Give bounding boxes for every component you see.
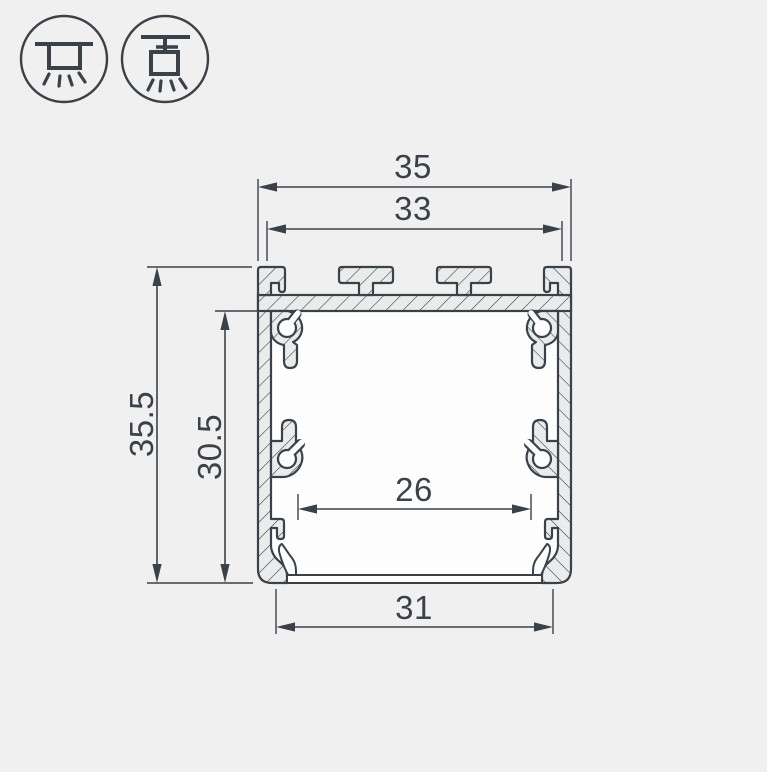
profile-cross-section-svg: 35 33 35.5 30.5 (0, 0, 767, 767)
bottom-diffuser (287, 575, 542, 583)
fixture-box (151, 52, 178, 74)
surface-mount-icon (21, 16, 107, 102)
mounting-icons (21, 16, 208, 102)
light-rays (44, 73, 85, 86)
dim-label-inner-height: 30.5 (191, 414, 228, 480)
technical-drawing: 35 33 35.5 30.5 (0, 0, 767, 767)
dim-label-outer-height: 35.5 (123, 391, 160, 457)
fixture-box (49, 44, 80, 68)
dim-label-inner-width: 26 (395, 471, 433, 508)
inner-cavity (271, 311, 558, 575)
top-plate (258, 295, 571, 311)
dim-label-top-inner-width: 33 (394, 190, 432, 227)
top-rib-t2 (437, 267, 491, 295)
light-rays (148, 79, 186, 91)
top-rib-left-end (258, 267, 285, 295)
dim-top-inner-width-33: 33 (267, 190, 562, 261)
dim-bottom-width-31: 31 (276, 589, 553, 634)
pendant-mount-icon (122, 16, 208, 102)
icon-circle (122, 16, 208, 102)
dim-label-top-width: 35 (394, 148, 432, 185)
top-rib-right-end (544, 267, 571, 295)
dim-outer-height-35-5: 35.5 (123, 267, 253, 583)
dim-label-bottom-width: 31 (395, 589, 433, 626)
profile-body (258, 267, 571, 583)
icon-circle (21, 16, 107, 102)
top-rib-t1 (339, 267, 393, 295)
